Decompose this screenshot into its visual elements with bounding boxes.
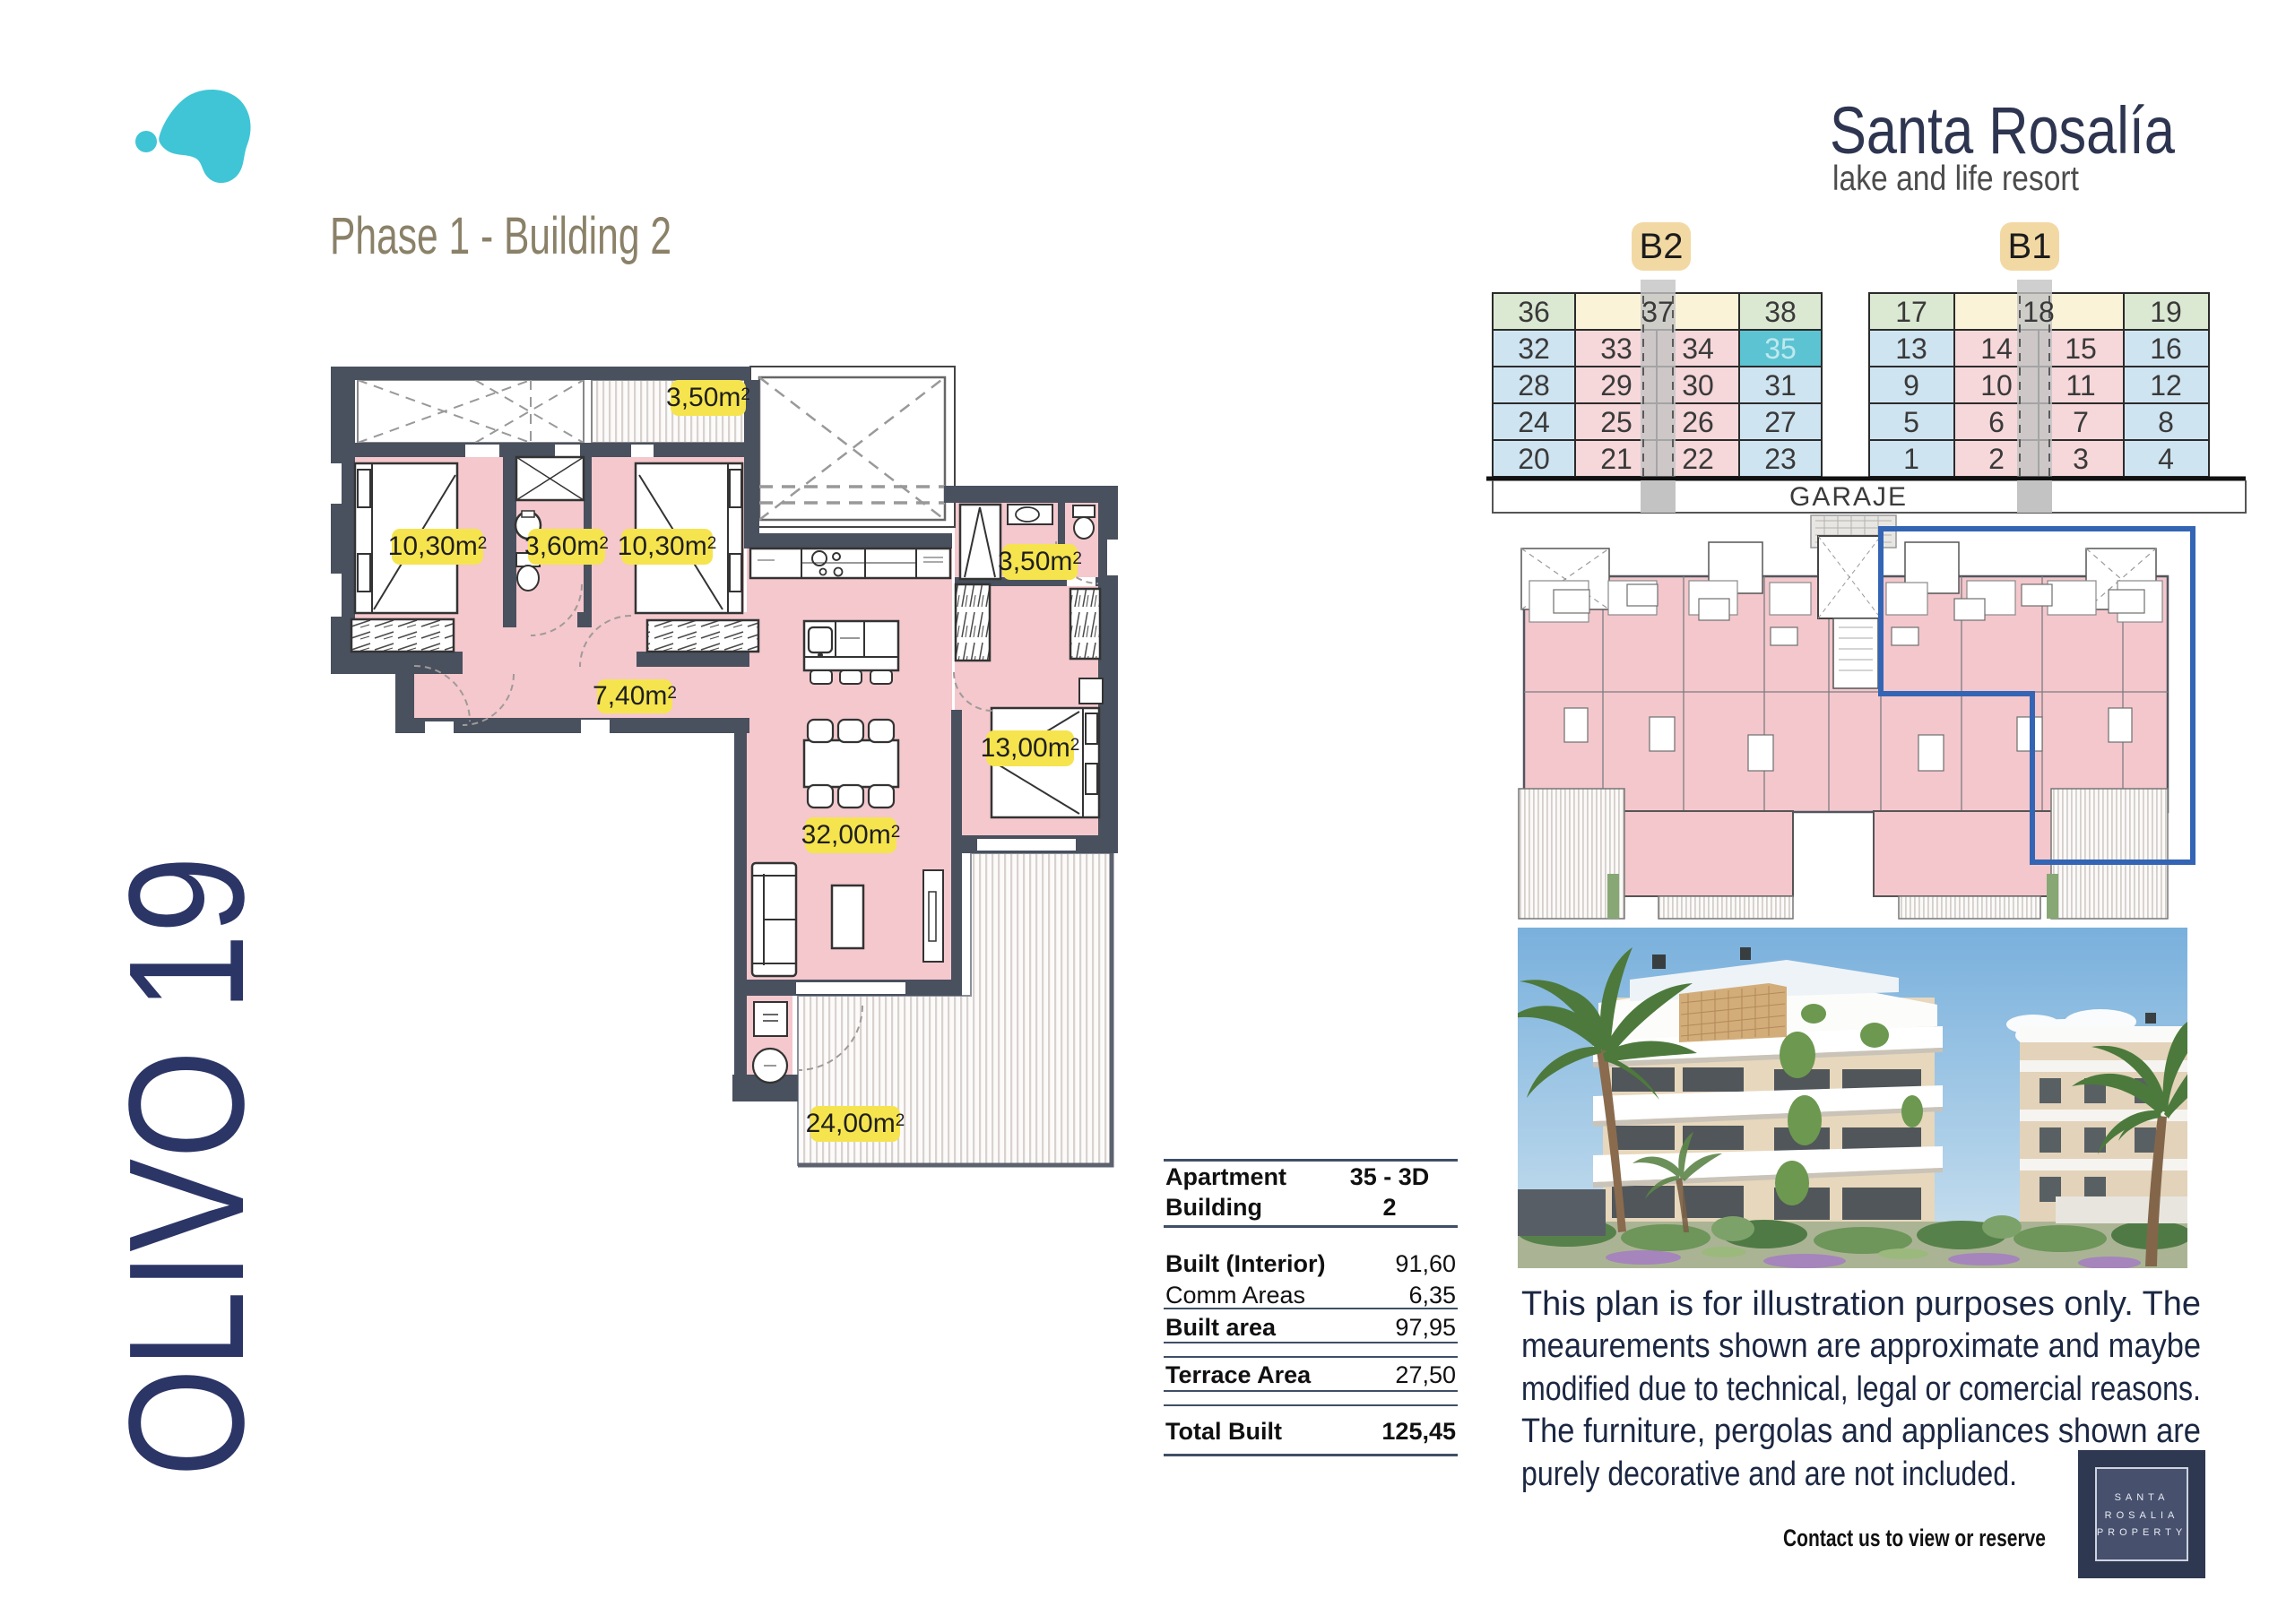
svg-text:34: 34 bbox=[1682, 333, 1714, 365]
svg-text:Santa Rosalía: Santa Rosalía bbox=[1830, 93, 2176, 168]
svg-text:4: 4 bbox=[2158, 443, 2174, 475]
svg-text:18: 18 bbox=[2022, 296, 2055, 328]
svg-text:OLIVO 19: OLIVO 19 bbox=[94, 856, 278, 1477]
svg-text:2: 2 bbox=[1988, 443, 2005, 475]
svg-text:25: 25 bbox=[1600, 406, 1632, 438]
svg-text:26: 26 bbox=[1682, 406, 1714, 438]
svg-text:17: 17 bbox=[1895, 296, 1927, 328]
svg-text:13: 13 bbox=[1895, 333, 1927, 365]
svg-text:22: 22 bbox=[1682, 443, 1714, 475]
svg-text:7: 7 bbox=[2073, 406, 2089, 438]
svg-text:13,00m2: 13,00m2 bbox=[981, 733, 1080, 763]
svg-text:37: 37 bbox=[1641, 296, 1674, 328]
svg-text:lake and life resort: lake and life resort bbox=[1832, 160, 2079, 198]
svg-text:3,60m2: 3,60m2 bbox=[524, 531, 609, 561]
svg-text:12: 12 bbox=[2150, 369, 2182, 402]
svg-text:Contact us to view or reserve: Contact us to view or reserve bbox=[1783, 1525, 2046, 1551]
svg-text:8: 8 bbox=[2158, 406, 2174, 438]
svg-text:6: 6 bbox=[1988, 406, 2005, 438]
svg-text:11: 11 bbox=[2065, 369, 2095, 402]
svg-text:19: 19 bbox=[2150, 296, 2182, 328]
svg-text:38: 38 bbox=[1764, 296, 1797, 328]
svg-text:Phase 1 - Building 2: Phase 1 - Building 2 bbox=[330, 207, 671, 265]
svg-text:3,50m2: 3,50m2 bbox=[998, 547, 1082, 576]
svg-text:3,50m2: 3,50m2 bbox=[666, 383, 750, 412]
svg-text:meaurements shown are approxim: meaurements shown are approximate and ma… bbox=[1521, 1327, 2201, 1365]
svg-text:23: 23 bbox=[1764, 443, 1797, 475]
svg-text:14: 14 bbox=[1980, 333, 2013, 365]
svg-text:30: 30 bbox=[1682, 369, 1714, 402]
svg-text:B2: B2 bbox=[1640, 227, 1684, 266]
svg-text:31: 31 bbox=[1764, 369, 1797, 402]
svg-text:33: 33 bbox=[1600, 333, 1632, 365]
svg-text:35: 35 bbox=[1764, 333, 1797, 365]
svg-text:7,40m2: 7,40m2 bbox=[593, 681, 677, 711]
svg-text:15: 15 bbox=[2065, 333, 2097, 365]
svg-text:The furniture, pergolas and ap: The furniture, pergolas and appliances s… bbox=[1521, 1412, 2201, 1450]
svg-text:This plan is for illustration: This plan is for illustration purposes o… bbox=[1521, 1285, 2201, 1323]
svg-text:10,30m2: 10,30m2 bbox=[388, 531, 488, 561]
svg-text:16: 16 bbox=[2150, 333, 2182, 365]
svg-text:3: 3 bbox=[2073, 443, 2089, 475]
svg-text:9: 9 bbox=[1903, 369, 1919, 402]
svg-text:32: 32 bbox=[1518, 333, 1550, 365]
svg-text:1: 1 bbox=[1903, 443, 1919, 475]
svg-text:modified due to technical, leg: modified due to technical, legal or come… bbox=[1521, 1370, 2201, 1408]
svg-text:28: 28 bbox=[1518, 369, 1550, 402]
svg-text:purely decorative and are not: purely decorative and are not included. bbox=[1521, 1456, 2017, 1493]
svg-text:B1: B1 bbox=[2008, 227, 2052, 266]
svg-text:5: 5 bbox=[1903, 406, 1919, 438]
svg-text:20: 20 bbox=[1518, 443, 1550, 475]
svg-text:10: 10 bbox=[1980, 369, 2013, 402]
svg-text:21: 21 bbox=[1600, 443, 1632, 475]
svg-text:29: 29 bbox=[1600, 369, 1632, 402]
svg-text:24: 24 bbox=[1518, 406, 1550, 438]
svg-text:10,30m2: 10,30m2 bbox=[618, 531, 717, 561]
svg-text:36: 36 bbox=[1518, 296, 1550, 328]
svg-text:32,00m2: 32,00m2 bbox=[801, 820, 901, 850]
svg-text:24,00m2: 24,00m2 bbox=[806, 1109, 905, 1138]
svg-text:27: 27 bbox=[1764, 406, 1797, 438]
